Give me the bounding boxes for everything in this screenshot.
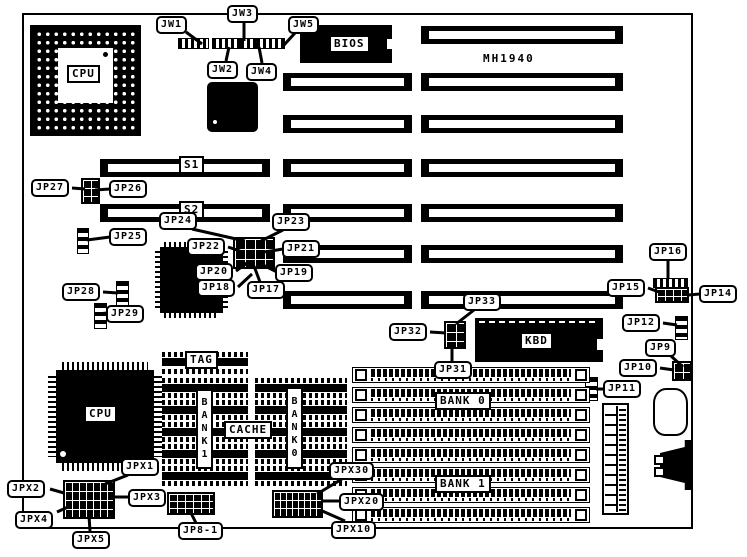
kbd-label: KBD [520,332,553,350]
power-pin-column [619,406,626,512]
callout-jw4: JW4 [246,63,277,81]
slot-stripe [429,78,615,86]
isa-slot [421,73,623,91]
model-text: MH1940 [483,52,535,65]
jumper-jp25 [77,228,89,254]
jumper-strip-jw1 [178,38,209,49]
jumper-strip-jw2-jw3 [212,38,240,49]
isa-slot-short [283,73,412,91]
pin1-dot [60,451,66,457]
slot-stripe [429,209,615,217]
callout-jpx3: JPX3 [128,489,166,507]
cpu-qfp-label: CPU [84,405,117,423]
callout-jw1: JW1 [156,16,187,34]
cache-sram-chip [162,466,248,486]
jumper-strip-jw4 [240,38,257,49]
isa-slot [421,115,623,133]
callout-jp21: JP21 [282,240,320,258]
callout-jpx30: JPX30 [329,462,374,480]
callout-jp24: JP24 [159,212,197,230]
callout-jpx20: JPX20 [339,493,384,511]
simm-socket [352,427,590,443]
callout-jp28: JP28 [62,283,100,301]
jumper-jp28 [116,281,129,307]
cpu-socket-label: CPU [67,65,100,83]
isa-slot-short [283,291,412,309]
callout-jpx5: JPX5 [72,531,110,549]
callout-jp12: JP12 [622,314,660,332]
callout-jp18: JP18 [197,279,235,297]
bios-label: BIOS [329,35,370,53]
cache-bank0-label: BANK0 [286,387,303,469]
callout-jp22: JP22 [187,238,225,256]
isa-slot [421,245,623,263]
mem-bank1-label: BANK 1 [435,475,491,493]
slot-stripe [429,31,615,39]
power-pin-column [605,406,618,512]
callout-jw5: JW5 [288,16,319,34]
din-notch [654,467,665,477]
callout-jp8-1: JP8-1 [178,522,223,540]
isa-slot [421,26,623,44]
slot-stripe [291,120,404,128]
s1-label: S1 [179,156,204,174]
slot-stripe [429,250,615,258]
power-connector [602,403,629,515]
pin1-dot [103,52,108,57]
callout-jp31: JP31 [434,361,472,379]
isa-slot-short [283,115,412,133]
callout-jp17: JP17 [247,281,285,299]
callout-jp10: JP10 [619,359,657,377]
isa-slot-short [283,159,412,177]
callout-jp11: JP11 [603,380,641,398]
callout-jp29: JP29 [106,305,144,323]
jumper-strip-jw5 [256,38,285,49]
din-notch [654,455,665,465]
jumper-block-jp9-jp10 [672,361,692,381]
cache-bank1-label: BANK1 [196,389,213,469]
chip-notch [597,339,603,350]
callout-jpx1: JPX1 [121,458,159,476]
chip-notch [387,39,392,49]
motherboard-diagram: CPU BIOS MH1940 S1 S2 [0,0,747,557]
isa-slot [421,291,623,309]
jumper-block-jpx10-jpx30 [272,490,323,518]
callout-jp14: JP14 [699,285,737,303]
jumper-block-jp17-jp24 [233,237,275,269]
jumper-block-jp14-jp15 [655,287,689,303]
ic-chip [207,82,258,132]
mem-bank0-label: BANK 0 [435,392,491,410]
callout-jpx10: JPX10 [331,521,376,539]
callout-jp16: JP16 [649,243,687,261]
cpu-pins-left [48,376,56,457]
simm-socket [352,507,590,523]
isa-slot [421,159,623,177]
chip-pins-bottom [164,313,219,318]
jumper-jp12 [675,316,688,340]
slot-stripe [291,164,404,172]
callout-jp15: JP15 [607,279,645,297]
cache-label: CACHE [224,421,272,439]
slot-stripe [291,78,404,86]
cpu-pins-top [62,362,148,370]
callout-jpx4: JPX4 [15,511,53,529]
callout-jp25: JP25 [109,228,147,246]
callout-jpx2: JPX2 [7,480,45,498]
callout-jw2: JW2 [207,61,238,79]
tag-label: TAG [185,351,218,369]
slot-stripe [291,296,404,304]
slot-stripe [429,120,615,128]
jumper-block-jp26-jp27 [81,178,100,204]
pin1-dot [213,120,217,124]
callout-jp23: JP23 [272,213,310,231]
callout-jw3: JW3 [227,5,258,23]
callout-jp32: JP32 [389,323,427,341]
callout-jp9: JP9 [645,339,676,357]
jumper-block-jpx1-jpx5 [63,480,115,519]
cpu-pins-right [154,376,162,457]
callout-jp27: JP27 [31,179,69,197]
slot-stripe [429,164,615,172]
callout-jp33: JP33 [463,293,501,311]
callout-jp26: JP26 [109,180,147,198]
battery [653,388,688,436]
isa-slot [421,204,623,222]
slot-stripe [429,296,615,304]
callout-jp19: JP19 [275,264,313,282]
jumper-block-jp31-jp33 [444,321,466,349]
jumper-block-jp8-1 [167,492,215,515]
chip-pin-dashes [479,321,599,323]
simm-socket [352,447,590,463]
